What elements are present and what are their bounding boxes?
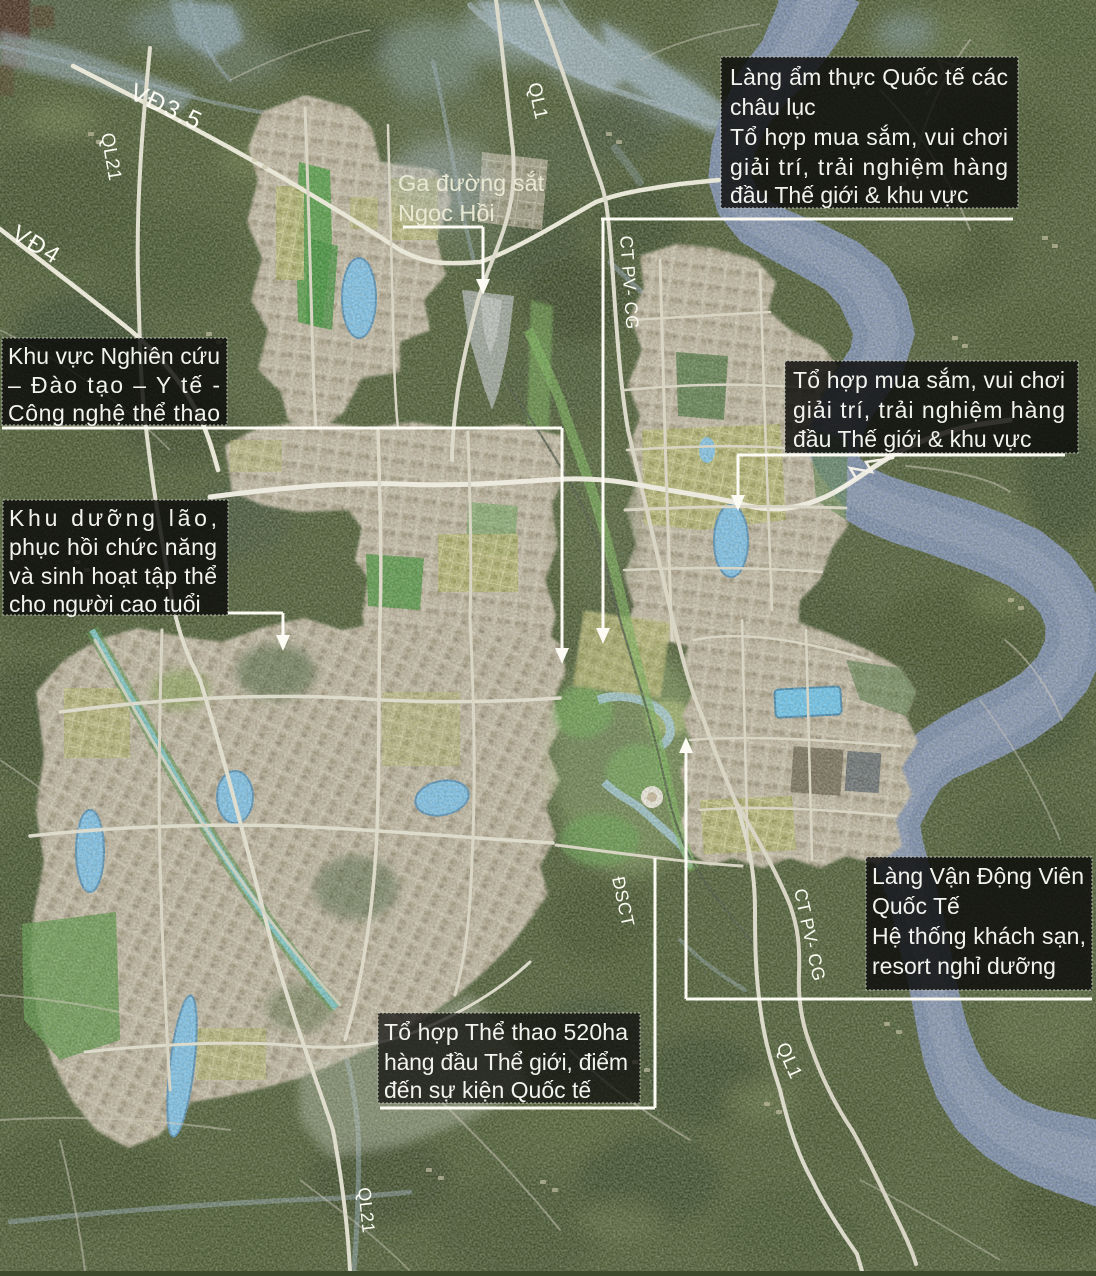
svg-text:Làng Vận Động Viên: Làng Vận Động Viên — [872, 863, 1084, 889]
svg-text:châu lục: châu lục — [730, 94, 816, 120]
svg-text:phục hồi chức năng: phục hồi chức năng — [9, 534, 217, 560]
svg-text:hàng đầu Thể giới, điểm: hàng đầu Thể giới, điểm — [384, 1049, 628, 1075]
svg-text:Tổ hợp Thể thao 520ha: Tổ hợp Thể thao 520ha — [384, 1019, 628, 1045]
svg-text:đầu Thế giới & khu vực: đầu Thế giới & khu vực — [730, 182, 968, 208]
svg-text:Ga đường sắt: Ga đường sắt — [398, 170, 545, 196]
svg-text:giải trí, trải nghiệm hàng: giải trí, trải nghiệm hàng — [730, 154, 1008, 180]
svg-text:đầu Thế giới & khu vực: đầu Thế giới & khu vực — [793, 426, 1031, 452]
svg-text:Tổ hợp mua sắm, vui chơi: Tổ hợp mua sắm, vui chơi — [793, 367, 1065, 393]
svg-text:Ngọc Hồi: Ngọc Hồi — [398, 200, 495, 226]
svg-text:Khu vực Nghiên cứu: Khu vực Nghiên cứu — [8, 343, 220, 369]
svg-text:Tổ hợp mua sắm, vui chơi: Tổ hợp mua sắm, vui chơi — [730, 124, 1008, 150]
svg-text:Công nghệ thể thao: Công nghệ thể thao — [8, 400, 220, 426]
svg-text:Khu dưỡng lão,: Khu dưỡng lão, — [9, 505, 217, 531]
svg-text:cho người cao tuổi: cho người cao tuổi — [9, 591, 201, 617]
svg-text:Hệ thống khách sạn,: Hệ thống khách sạn, — [872, 923, 1086, 949]
svg-text:resort nghỉ dưỡng: resort nghỉ dưỡng — [872, 953, 1056, 979]
svg-text:Làng ẩm thực Quốc tế các: Làng ẩm thực Quốc tế các — [730, 64, 1008, 90]
svg-text:giải trí, trải nghiệm hàng: giải trí, trải nghiệm hàng — [793, 397, 1065, 423]
svg-text:đến sự kiện Quốc tế: đến sự kiện Quốc tế — [384, 1077, 591, 1103]
svg-text:Quốc Tế: Quốc Tế — [872, 893, 960, 919]
svg-text:và sinh hoạt tập thể: và sinh hoạt tập thể — [9, 563, 217, 589]
